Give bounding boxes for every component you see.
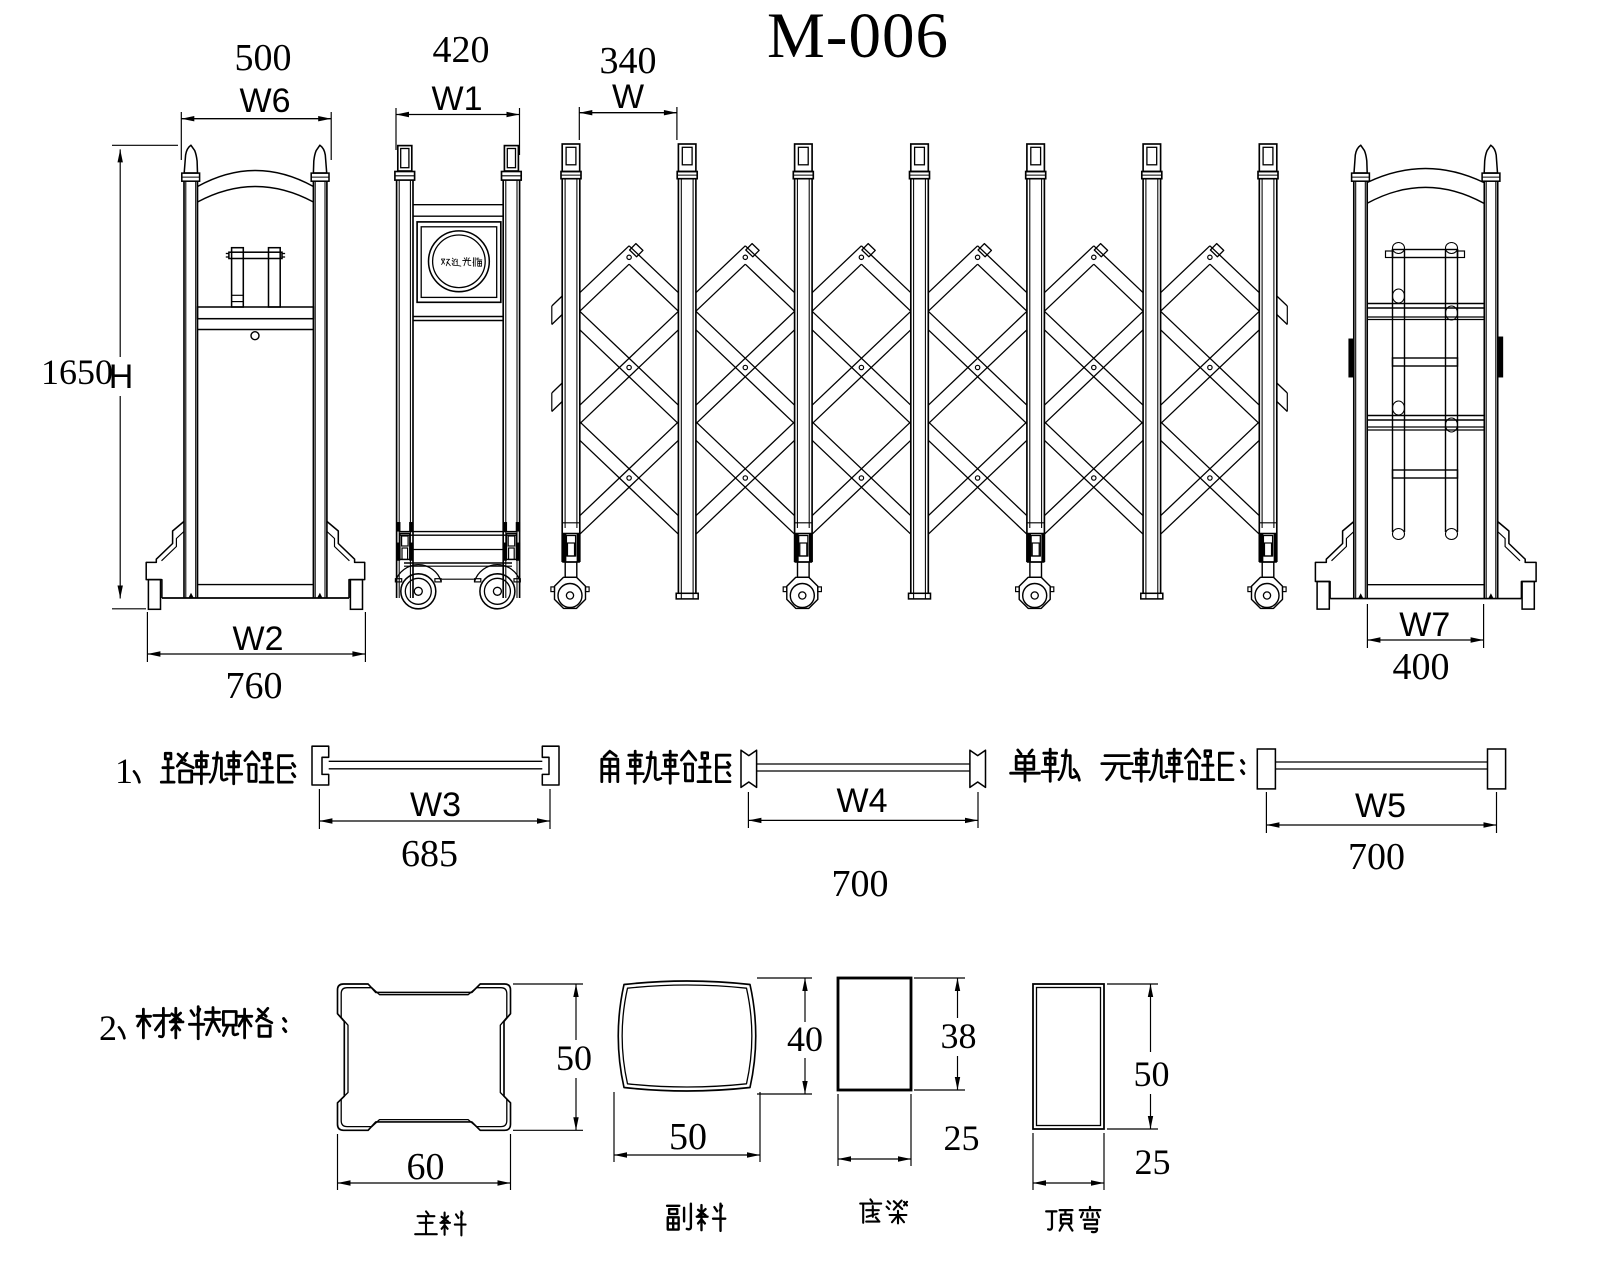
svg-text:50: 50 (1134, 1054, 1170, 1094)
svg-text:W6: W6 (240, 82, 291, 120)
svg-text:25: 25 (1135, 1142, 1171, 1182)
svg-text:25: 25 (944, 1118, 980, 1158)
svg-text:H: H (109, 358, 134, 396)
svg-text:400: 400 (1393, 646, 1450, 688)
svg-text:50: 50 (556, 1038, 592, 1078)
svg-text:700: 700 (832, 863, 889, 905)
svg-text:50: 50 (669, 1116, 707, 1158)
svg-text:W5: W5 (1355, 787, 1406, 825)
svg-text:38: 38 (941, 1016, 977, 1056)
svg-text:60: 60 (407, 1146, 445, 1188)
svg-text:W2: W2 (233, 620, 284, 658)
svg-text:M-006: M-006 (767, 0, 949, 72)
svg-text:40: 40 (787, 1019, 823, 1059)
svg-text:700: 700 (1348, 836, 1405, 878)
svg-text:685: 685 (401, 833, 458, 875)
svg-text:W3: W3 (410, 786, 461, 824)
svg-text:1650: 1650 (41, 352, 113, 392)
svg-text:420: 420 (433, 29, 490, 71)
svg-text:760: 760 (226, 665, 283, 707)
svg-text:W: W (612, 78, 644, 116)
svg-text:W7: W7 (1399, 606, 1450, 644)
svg-text:2: 2 (99, 1008, 117, 1048)
svg-text:W1: W1 (432, 80, 483, 118)
svg-text:1: 1 (115, 751, 133, 791)
svg-text:W4: W4 (837, 782, 888, 820)
svg-text:500: 500 (235, 37, 292, 79)
svg-text:340: 340 (600, 40, 657, 82)
